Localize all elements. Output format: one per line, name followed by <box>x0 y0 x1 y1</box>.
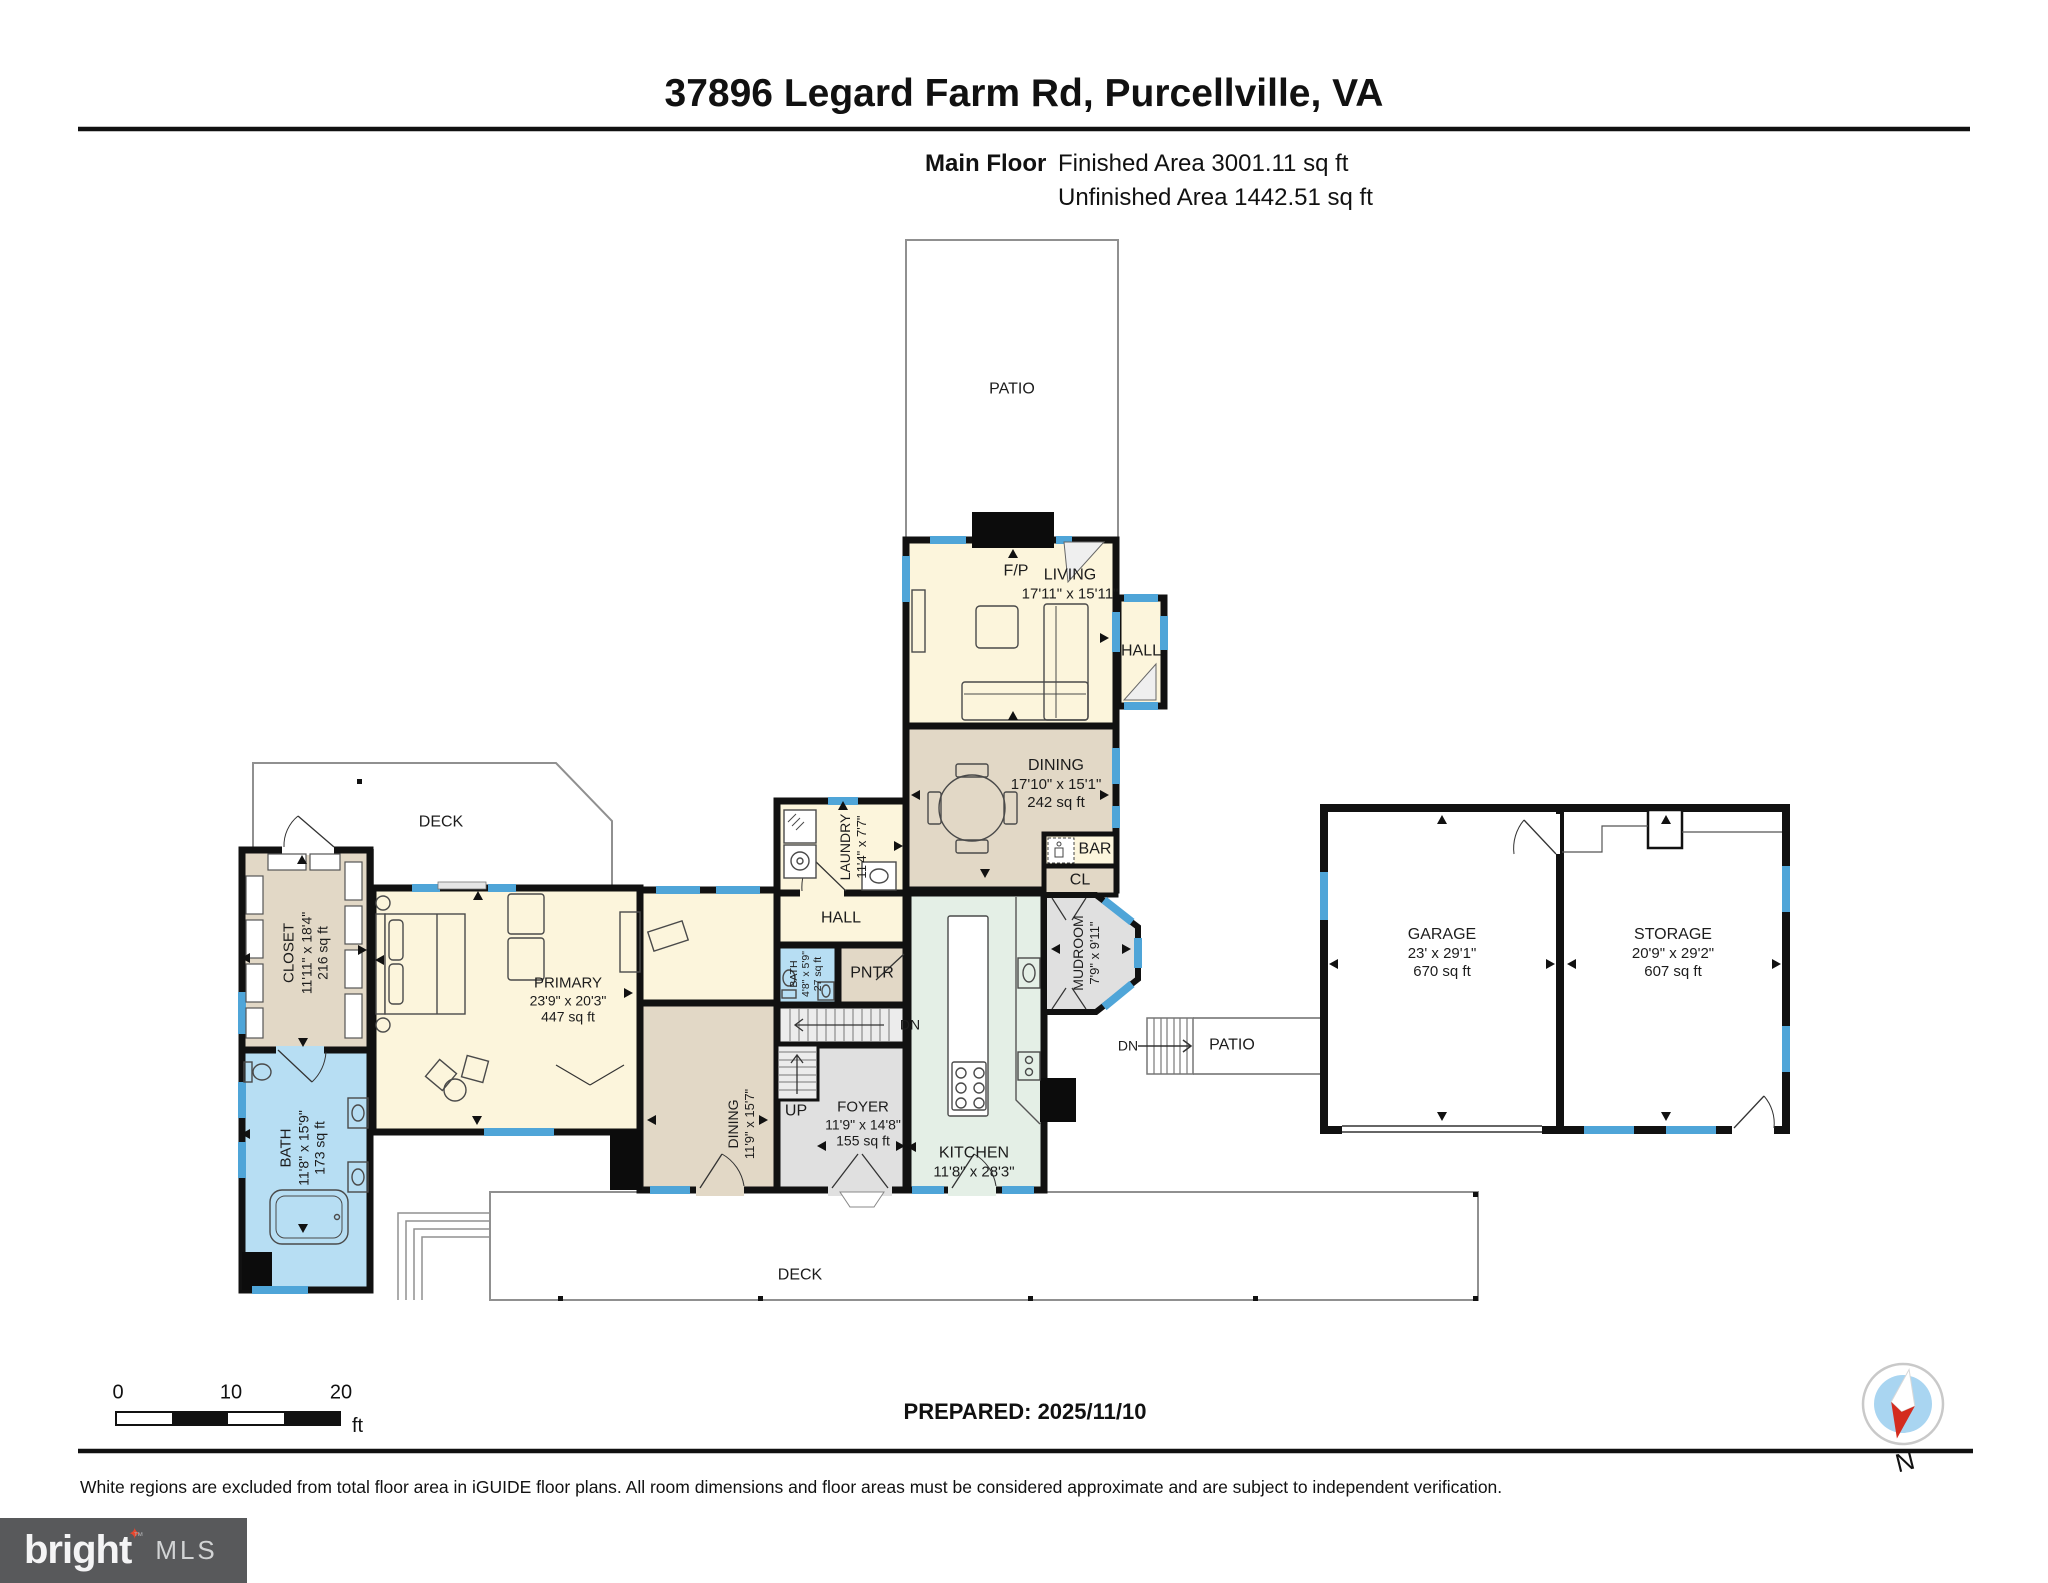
bar-icon <box>1048 838 1074 863</box>
room-label-mudroom: MUDROOM 7'9" x 9'11" <box>1070 915 1102 990</box>
prepared-date: PREPARED: 2025/11/10 <box>904 1399 1147 1425</box>
deck-upper-label: DECK <box>419 814 463 833</box>
scale-bar <box>116 1412 340 1425</box>
deck-lower-label: DECK <box>778 1267 822 1286</box>
room-label-dining-lower: DINING 11'9" x 15'7" <box>725 1089 757 1159</box>
deck-lower-area <box>490 1192 1478 1300</box>
chimney-block <box>1040 1078 1076 1122</box>
room-label-closet: CLOSET 11'11" x 18'4" 216 sq ft <box>281 912 332 995</box>
bed-icon <box>376 896 465 1032</box>
room-label-bar: BAR <box>1079 841 1112 860</box>
room-label-bath-small: BATH 4'8" x 5'9" 27 sq ft <box>788 951 824 997</box>
fireplace-icon <box>972 512 1054 548</box>
room-label-hall-mid: HALL <box>821 910 861 929</box>
patio-steps <box>1138 1018 1193 1074</box>
logo-mls-text: MLS <box>155 1535 217 1566</box>
room-label-primary: PRIMARY 23'9" x 20'3" 447 sq ft <box>530 975 607 1026</box>
finished-area-text: Finished Area 3001.11 sq ft <box>1058 150 1348 178</box>
logo-trademark: ™ <box>133 1531 143 1542</box>
room-label-garage: GARAGE 23' x 29'1" 670 sq ft <box>1408 926 1477 980</box>
compass-icon <box>1863 1364 1943 1444</box>
floor-plan-page: 37896 Legard Farm Rd, Purcellville, VA M… <box>0 0 2048 1583</box>
page-title: 37896 Legard Farm Rd, Purcellville, VA <box>665 72 1384 116</box>
stairs-down-label: DN <box>900 1017 920 1034</box>
room-label-hall-upper: HALL <box>1121 643 1161 662</box>
scale-tick-0: 0 <box>112 1382 123 1405</box>
room-label-pantry: PNTR <box>850 965 894 984</box>
room-label-patio-top: PATIO <box>989 381 1035 400</box>
room-label-storage: STORAGE 20'9" x 29'2" 607 sq ft <box>1632 926 1714 980</box>
room-label-living: LIVING 17'11" x 15'11" <box>1022 567 1119 604</box>
scale-unit: ft <box>352 1415 363 1438</box>
deck-steps <box>398 1213 490 1300</box>
disclaimer-text: White regions are excluded from total fl… <box>80 1477 1502 1498</box>
room-label-kitchen: KITCHEN 11'8" x 28'3" <box>933 1145 1014 1182</box>
room-label-foyer: FOYER 11'9" x 14'8" 155 sq ft <box>825 1099 901 1150</box>
room-label-laundry: LAUNDRY 11'4" x 7'7" <box>837 814 869 881</box>
scale-tick-20: 20 <box>330 1382 352 1405</box>
room-hall-left-shape <box>640 890 777 1003</box>
room-label-cl: CL <box>1070 872 1090 891</box>
kitchen-island-icon <box>948 916 988 1116</box>
room-label-bath-primary: BATH 11'8" x 15'9" 173 sq ft <box>278 1110 329 1186</box>
deck-post <box>357 779 362 784</box>
wall-block <box>242 1252 272 1290</box>
room-label-dining: DINING 17'10" x 15'1" 242 sq ft <box>1011 757 1102 811</box>
floor-label: Main Floor <box>925 150 1046 178</box>
logo-brand-text: bright <box>24 1528 131 1573</box>
wall-block <box>610 1130 642 1190</box>
unfinished-area-text: Unfinished Area 1442.51 sq ft <box>1058 184 1373 212</box>
stairs-down-patio-label: DN <box>1118 1038 1138 1055</box>
scale-tick-10: 10 <box>220 1382 242 1405</box>
stairs-up-label: UP <box>785 1103 807 1122</box>
bright-mls-logo: bright ✦ ™ MLS <box>0 1518 247 1583</box>
patio-right-label: PATIO <box>1209 1037 1255 1056</box>
